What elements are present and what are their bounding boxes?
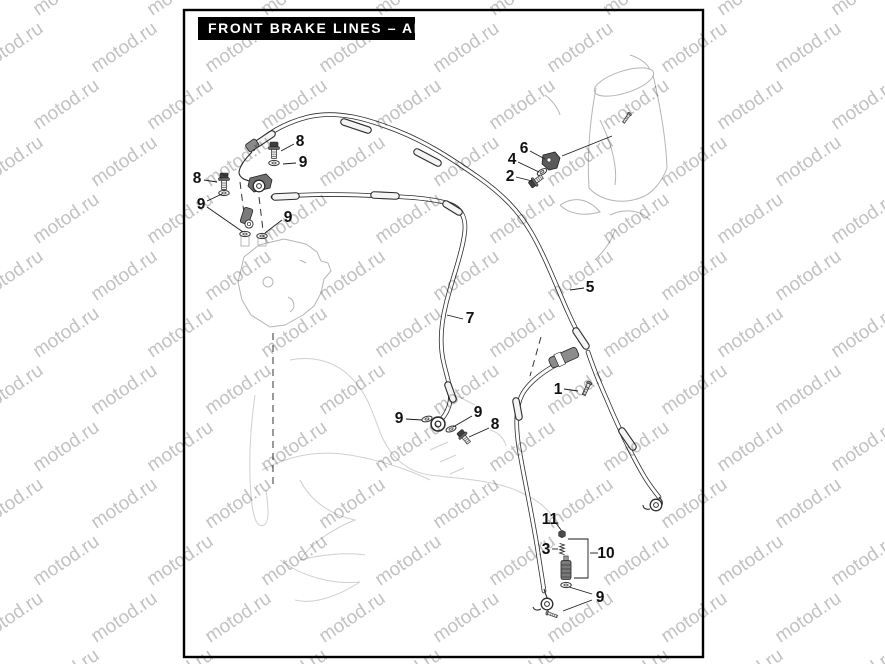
screw-on-fork <box>622 112 632 124</box>
hose-clamp <box>547 346 580 370</box>
leader-line-9 <box>207 194 222 201</box>
leader-line-1 <box>564 389 578 391</box>
callout-2: 2 <box>506 168 515 185</box>
upper-union-assembly <box>239 138 272 228</box>
callout-9: 9 <box>299 154 308 171</box>
leader-line-8 <box>204 180 217 182</box>
callout-8: 8 <box>296 133 305 150</box>
leader-line-9 <box>207 207 243 232</box>
washer-9c2 <box>257 233 267 238</box>
banjo-bolt-8b <box>219 173 230 189</box>
page-title: FRONT BRAKE LINES – ABS <box>208 20 436 36</box>
leader-line-9 <box>569 587 592 594</box>
callout-7: 7 <box>466 310 475 327</box>
callout-5: 5 <box>586 279 595 296</box>
leader-line-9 <box>265 220 282 233</box>
callout-9: 9 <box>596 589 605 606</box>
bracket-6 <box>542 136 612 170</box>
title-block: FRONT BRAKE LINES – ABS <box>198 17 436 40</box>
leader-line-9 <box>453 416 472 427</box>
brake-hose-7 <box>273 195 465 422</box>
parts-catalog-page: FRONT BRAKE LINES – ABS 8989964257199811… <box>0 0 885 664</box>
callout-4: 4 <box>508 151 517 168</box>
brake-hose-lower-left <box>517 363 559 591</box>
lower-frame-sketch <box>250 359 556 602</box>
alignment-dashes <box>240 182 541 486</box>
callout-9: 9 <box>395 410 404 427</box>
callout-8: 8 <box>491 416 500 433</box>
screw-1 <box>581 381 592 397</box>
washer-4 <box>536 167 548 177</box>
callout-6: 6 <box>520 140 529 157</box>
leader-line-8 <box>469 428 489 437</box>
leader-line-9 <box>406 419 422 420</box>
callout-3: 3 <box>542 541 551 558</box>
leader-line-9 <box>563 600 592 611</box>
washer-9a <box>269 160 279 165</box>
hose-sleeves <box>257 122 633 447</box>
leader-line-4 <box>518 162 539 172</box>
callout-10: 10 <box>597 545 614 562</box>
leader-line-7 <box>447 315 463 319</box>
banjo-bolt-8a <box>269 142 280 158</box>
callout-1: 1 <box>554 381 563 398</box>
fork-steering-sketch <box>545 55 667 260</box>
callout-9: 9 <box>284 209 293 226</box>
leader-line-2 <box>516 177 532 181</box>
callout-9: 9 <box>197 196 206 213</box>
callout-layer: 89899642571998113109 <box>193 133 615 611</box>
leader-line-5 <box>570 288 584 290</box>
washer-9c1 <box>240 231 250 236</box>
leader-line-8 <box>281 144 294 151</box>
callout-9: 9 <box>474 404 483 421</box>
front-brake-lines-diagram: FRONT BRAKE LINES – ABS 8989964257199811… <box>0 0 885 664</box>
callout-11: 11 <box>542 511 559 528</box>
leader-line-9 <box>283 163 296 164</box>
callout-8: 8 <box>193 170 202 187</box>
abs-module-sketch <box>238 235 331 327</box>
